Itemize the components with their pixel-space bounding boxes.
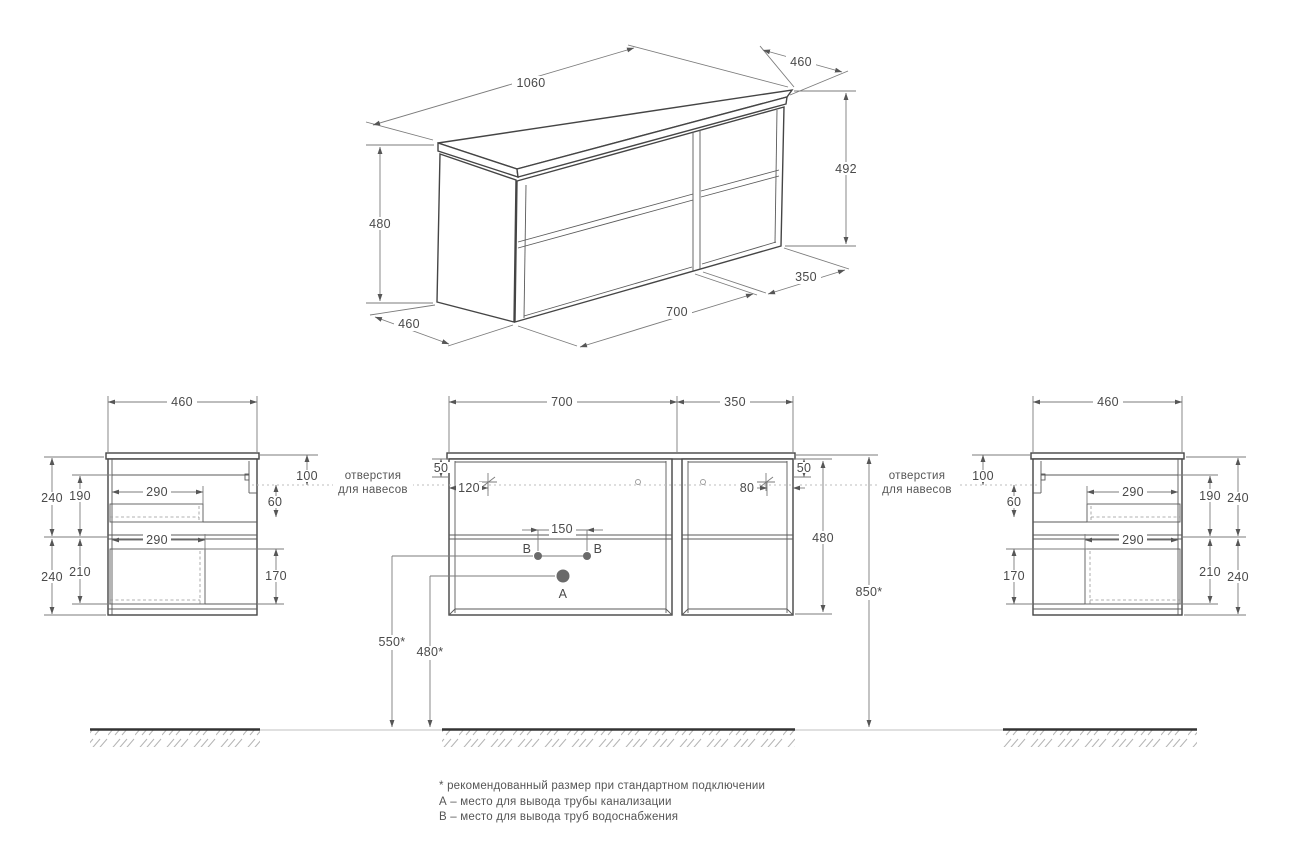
left-view-countertop: [106, 453, 259, 459]
left-view-hanger-note: отверстия для навесов: [333, 467, 413, 496]
front-view-dim-width-left: 700: [551, 395, 573, 409]
cabinet-dimension-drawing: 1060 460 492 480 460 700: [0, 0, 1300, 844]
iso-dim-front-width: 700: [666, 305, 688, 319]
left-view-dim-hanger-offset: 100: [296, 469, 318, 483]
left-view-dim-inner-bottom: 210: [69, 565, 91, 579]
front-view-dim-width-right: 350: [724, 395, 746, 409]
right-view-dim-outer-top: 240: [1227, 491, 1249, 505]
left-view-dim-outer-bottom: 240: [41, 570, 63, 584]
left-view-dim-inner-top: 190: [69, 489, 91, 503]
right-view-dim-inner-top: 190: [1199, 489, 1221, 503]
hanger-note-right-line2: для навесов: [882, 484, 952, 496]
front-view-countertop: [447, 453, 795, 459]
right-view-dim-hanger-offset: 100: [972, 469, 994, 483]
iso-dim-left-height: 480: [369, 217, 391, 231]
left-view-dim-drawer-top: 290: [146, 485, 168, 499]
left-view-carcass: [108, 459, 257, 615]
right-view-hanger-note: отверстия для навесов: [877, 467, 957, 496]
ground-hatch-right: [1003, 730, 1197, 747]
front-view-dim-hole-left: 120: [458, 481, 480, 495]
left-view-dim-width: 460: [171, 395, 193, 409]
footnote-recommended-size: * рекомендованный размер при стандартном…: [439, 780, 765, 792]
water-outlet-hole-left: [534, 552, 542, 560]
hanger-note-left-line1: отверстия: [345, 470, 402, 482]
water-outlet-hole-right: [583, 552, 591, 560]
iso-dim-bottom-depth: 460: [398, 317, 420, 331]
front-view-dim-top-rail-right: 50: [797, 461, 812, 475]
label-a: А: [559, 587, 568, 601]
ground-hatch-left: [90, 730, 260, 747]
front-view-dim-top-rail-left: 50: [434, 461, 449, 475]
front-view-dim-b-height: 550*: [379, 635, 406, 649]
front-view-dim-a-height: 480*: [417, 645, 444, 659]
front-view-dim-b-spacing: 150: [551, 522, 573, 536]
front-view-dim-height: 480: [812, 531, 834, 545]
left-view-dim-outer-top: 240: [41, 491, 63, 505]
iso-dim-right-width: 350: [795, 270, 817, 284]
right-view-carcass: [1033, 459, 1182, 615]
right-view-dim-hanger-gap: 60: [1007, 495, 1022, 509]
left-side-view: 460 240 240 190 210 290 290: [39, 395, 447, 615]
iso-dim-top-depth: 460: [790, 55, 812, 69]
technical-drawing-page: 1060 460 492 480 460 700: [0, 0, 1300, 844]
right-view-dim-outer-bottom: 240: [1227, 570, 1249, 584]
right-view-dim-width: 460: [1097, 395, 1119, 409]
right-view-dim-drawer-top: 290: [1122, 485, 1144, 499]
left-view-dim-hanger-gap: 60: [268, 495, 283, 509]
label-b-right: В: [594, 542, 603, 556]
front-view-dim-hole-right: 80: [740, 481, 755, 495]
iso-dim-top-width: 1060: [516, 76, 545, 90]
footnote-b-meaning: В – место для вывода труб водоснабжения: [439, 811, 678, 823]
right-view-dim-inner-bottom: 210: [1199, 565, 1221, 579]
left-view-dim-drawer-bottom: 290: [146, 533, 168, 547]
iso-dim-right-height: 492: [835, 162, 857, 176]
label-b-left: В: [523, 542, 532, 556]
iso-left-face: [437, 154, 516, 322]
right-view-countertop: [1031, 453, 1184, 459]
hanger-note-right-line1: отверстия: [889, 470, 946, 482]
front-view: 700 350 50 50 120 80: [375, 395, 886, 727]
right-side-view: 460 100 60 170 290 290: [800, 395, 1252, 615]
front-view-dim-mount-height: 850*: [856, 585, 883, 599]
footnotes: * рекомендованный размер при стандартном…: [439, 780, 765, 823]
isometric-view: 1060 460 492 480 460 700: [366, 45, 860, 347]
hanger-note-left-line2: для навесов: [338, 484, 408, 496]
footnote-a-meaning: А – место для вывода трубы канализации: [439, 796, 672, 808]
right-view-dim-drawer-depth: 170: [1003, 569, 1025, 583]
ground-hatch-center: [442, 730, 795, 747]
ground-line: [90, 730, 1197, 748]
left-view-dim-drawer-depth: 170: [265, 569, 287, 583]
right-view-dim-drawer-bottom: 290: [1122, 533, 1144, 547]
drain-outlet-hole: [557, 570, 570, 583]
